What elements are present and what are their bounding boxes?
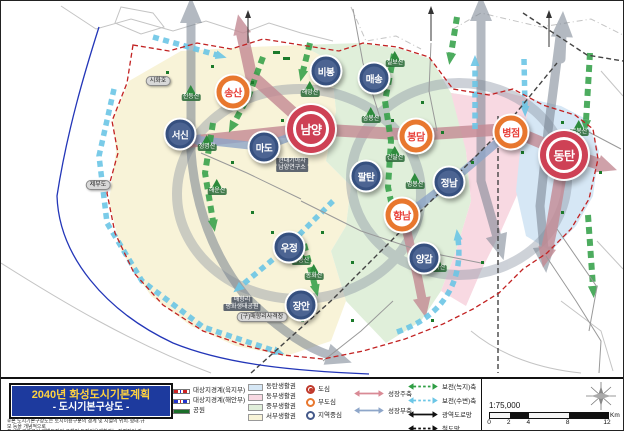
node-label: 동탄: [553, 147, 574, 164]
map-label-layer: 남양동탄송산봉담병점향남서신마도비봉매송팔탄정남양감우정장안천등산해망산칠보산삼…: [1, 1, 624, 377]
mountain-icon: [309, 264, 319, 273]
legend-label: 광역도로망: [442, 412, 472, 420]
footnote-line1: ※본 도시기본구상도는 토지이용구분의 경계 및 시설의 위치·형태·규모 등을…: [7, 419, 146, 430]
mountain-icon: [202, 135, 212, 144]
node-budosim: 병점: [495, 116, 528, 149]
scale-ratio: 1:75,000: [489, 401, 520, 410]
legend-label: 보전(녹지)축: [442, 384, 476, 392]
node-label: 우정: [281, 240, 297, 254]
center-swatch: [306, 398, 315, 407]
legend-label: 대상지경계(육지부): [193, 387, 245, 395]
mountain-marker: 명봉산: [406, 173, 425, 189]
axis-arrow-swatch: [353, 406, 385, 418]
node-label: 팔탄: [358, 169, 374, 183]
zone-swatch: [248, 404, 263, 411]
node-budosim: 송산: [217, 76, 250, 109]
node-label: 봉담: [407, 129, 424, 144]
node-jiyeok: 비봉: [312, 57, 341, 86]
node-jiyeok: 양감: [410, 244, 439, 273]
mountain-icon: [305, 81, 315, 90]
node-jiyeok: 마도: [250, 133, 279, 162]
map-subtitle: - 도시기본구상도 -: [53, 402, 130, 414]
scale-segment: [569, 413, 608, 418]
node-label: 장안: [293, 298, 309, 312]
node-budosim: 봉담: [400, 120, 433, 153]
compass-rose-icon: [584, 381, 618, 411]
mountain-marker: 삼봉산: [362, 107, 381, 123]
mountain-icon: [574, 120, 584, 129]
map-canvas: 남양동탄송산봉담병점향남서신마도비봉매송팔탄정남양감우정장안천등산해망산칠보산삼…: [1, 1, 624, 377]
map-annotation: 매향리평화생태공원: [223, 297, 260, 311]
mountain-marker: 해운산: [208, 179, 227, 195]
legend-label: 중부생활권: [266, 403, 296, 411]
legend-centers: 도심부도심지역중심: [306, 385, 342, 420]
legend-label: 동부생활권: [266, 393, 296, 401]
axis-arrow-swatch: [407, 382, 439, 394]
legend-conserve-axes: 보전(녹지)축보전(수변)축광역도로망철도망: [407, 382, 476, 431]
planning-map-sheet: 남양동탄송산봉담병점향남서신마도비봉매송팔탄정남양감우정장안천등산해망산칠보산삼…: [0, 0, 624, 431]
legend-growth-axes: 성장주축성장부축: [353, 389, 412, 418]
scale-tick-label: 8: [566, 419, 570, 426]
scale-bar: [489, 412, 609, 419]
boundary-swatch: [173, 399, 190, 404]
node-jiyeok: 장안: [287, 291, 316, 320]
legend-boundaries: 대상지경계(육지부)대상지경계(해안부)공원: [173, 387, 245, 415]
mountain-label: 무봉산: [570, 129, 589, 136]
scale-ticks: 024812: [489, 419, 607, 427]
node-label: 비봉: [318, 64, 334, 78]
node-jiyeok: 정남: [435, 168, 464, 197]
node-dosim: 동탄: [546, 137, 582, 173]
scale-segment: [510, 413, 530, 418]
scale-tick-label: 4: [527, 419, 531, 426]
boundary-swatch: [173, 389, 190, 394]
center-swatch: [306, 411, 315, 420]
center-swatch: [306, 385, 315, 394]
mountain-label: 삼봉산: [362, 116, 381, 123]
mountain-label: 해운산: [208, 188, 227, 195]
node-label: 정남: [441, 175, 457, 189]
scale-tick-label: 2: [507, 419, 511, 426]
mountain-icon: [390, 146, 400, 155]
mountain-label: 천등산: [182, 94, 201, 101]
node-jiyeok: 서신: [166, 120, 195, 149]
legend-zones: 동탄생활권동부생활권중부생활권서부생활권: [248, 383, 296, 421]
node-label: 병점: [502, 125, 519, 140]
mountain-label: 칠보산: [386, 60, 405, 67]
map-annotation: 현대기아차남양연구소: [276, 158, 308, 172]
node-jiyeok: 매송: [360, 64, 389, 93]
node-label: 마도: [256, 140, 272, 154]
zone-swatch: [248, 414, 263, 421]
mountain-marker: 칠보산: [386, 51, 405, 67]
title-box: 2040년 화성도시기본계획 - 도시기본구상도 -: [9, 383, 173, 419]
legend-label: 보전(수변)축: [442, 398, 476, 406]
mountain-label: 청명산: [198, 144, 217, 151]
map-annotation: 제부도: [86, 180, 111, 190]
node-label: 매송: [366, 71, 382, 85]
mountain-marker: 봉화산: [305, 264, 324, 280]
mountain-marker: 해망산: [301, 81, 320, 97]
axis-arrow-swatch: [407, 396, 439, 408]
scale-unit: Km: [610, 412, 620, 419]
legend-label: 공원: [193, 407, 205, 415]
map-annotation: (구)매향리사격장: [237, 312, 288, 322]
mountain-label: 명봉산: [406, 182, 425, 189]
node-label: 남양: [300, 121, 321, 138]
mountain-label: 건달산: [386, 155, 405, 162]
axis-arrow-swatch: [407, 424, 439, 431]
mountain-marker: 건달산: [386, 146, 405, 162]
scale-segment: [490, 413, 510, 418]
mountain-marker: 천등산: [182, 85, 201, 101]
node-jiyeok: 팔탄: [352, 162, 381, 191]
legend-label: 대상지경계(해안부): [193, 397, 245, 405]
park-swatch: [173, 409, 190, 414]
legend-label: 철도망: [442, 426, 460, 431]
legend-label: 지역중심: [318, 412, 342, 420]
legend-label: 동탄생활권: [266, 383, 296, 391]
plan-title: 2040년 화성도시기본계획: [32, 389, 151, 402]
mountain-icon: [390, 51, 400, 60]
node-jiyeok: 우정: [275, 233, 304, 262]
mountain-marker: 청명산: [198, 135, 217, 151]
legend-strip: 2040년 화성도시기본계획 - 도시기본구상도 - ※본 도시기본구상도는 토…: [1, 377, 624, 431]
mountain-label: 해망산: [301, 90, 320, 97]
mountain-label: 봉화산: [305, 273, 324, 280]
map-annotation: 시화호: [146, 76, 171, 86]
mountain-marker: 무봉산: [570, 120, 589, 136]
node-label: 서신: [172, 127, 188, 141]
axis-arrow-swatch: [353, 389, 385, 401]
node-dosim: 남양: [293, 111, 329, 147]
axis-arrow-swatch: [407, 410, 439, 422]
legend-label: 서부생활권: [266, 413, 296, 421]
footnote: ※본 도시기본구상도는 토지이용구분의 경계 및 시설의 위치·형태·규모 등을…: [7, 419, 146, 431]
zone-swatch: [248, 384, 263, 391]
node-label: 양감: [416, 251, 432, 265]
zone-swatch: [248, 394, 263, 401]
mountain-icon: [410, 173, 420, 182]
node-label: 송산: [224, 85, 241, 100]
mountain-icon: [186, 85, 196, 94]
legend-label: 도심: [318, 386, 330, 394]
scale-tick-label: 12: [603, 419, 610, 426]
scale-segment: [529, 413, 568, 418]
mountain-icon: [212, 179, 222, 188]
scale-tick-label: 0: [487, 419, 491, 426]
scale-panel: 1:75,000 024812 Km: [481, 379, 624, 431]
node-label: 향남: [393, 208, 410, 223]
legend-label: 부도심: [318, 399, 336, 407]
mountain-icon: [366, 107, 376, 116]
node-budosim: 향남: [386, 199, 419, 232]
